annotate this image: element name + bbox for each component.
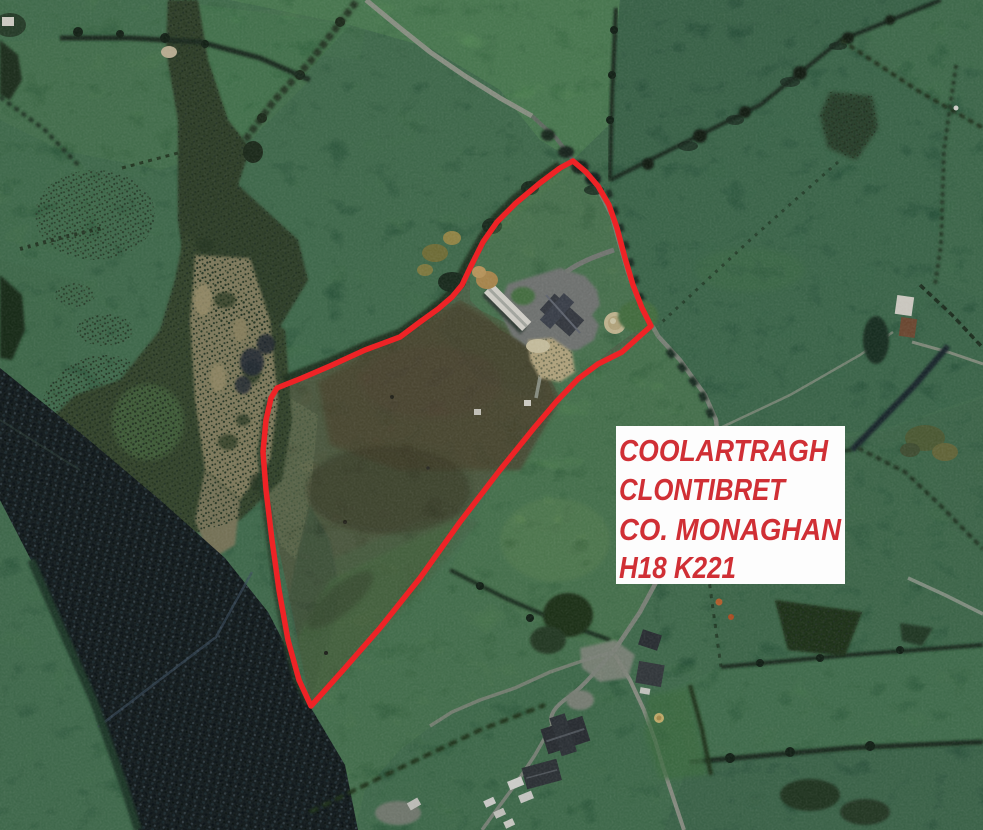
svg-text:H18 K221: H18 K221 xyxy=(619,550,736,585)
svg-text:COOLARTRAGH: COOLARTRAGH xyxy=(619,433,829,468)
svg-text:CO. MONAGHAN: CO. MONAGHAN xyxy=(619,512,842,547)
svg-text:CLONTIBRET: CLONTIBRET xyxy=(619,472,788,507)
